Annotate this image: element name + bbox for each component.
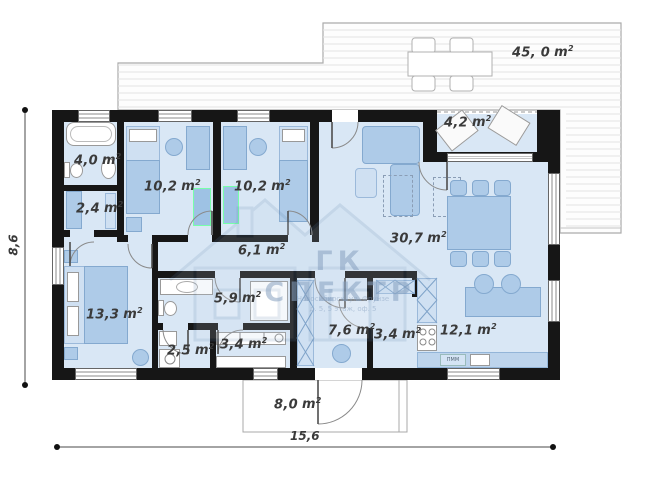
room-label-wardrobe: 2,4m2 xyxy=(76,200,124,216)
dimension-height: 8,6 xyxy=(7,234,21,255)
room-label-wc: 2,5m2 xyxy=(167,342,215,358)
room-label-entry-hall: 7,6m2 xyxy=(328,322,376,338)
room-label-living-room: 30,7m2 xyxy=(390,230,447,246)
watermark-address-line1: Новосибирск, ул. Фрунзе xyxy=(258,294,428,304)
room-label-wardrobe-2: 3,4m2 xyxy=(374,326,422,342)
room-label-kitchen: 12,1m2 xyxy=(440,322,497,338)
room-label-hallway: 6,1m2 xyxy=(238,242,286,258)
room-label-porch: 8,0m2 xyxy=(274,396,322,412)
room-label-bedroom-3: 13,3m2 xyxy=(86,306,143,322)
room-label-bathroom-2: 5,9m2 xyxy=(214,290,262,306)
watermark-address: Новосибирск, ул. Фрунзе д. 5, 5 этаж, оф… xyxy=(258,294,428,314)
floor-plan: ПММ xyxy=(0,0,661,502)
room-label-terrace: 45, 0m2 xyxy=(512,44,574,60)
room-label-bedroom-2: 10,2m2 xyxy=(234,178,291,194)
room-label-entry-terrace: 4,2m2 xyxy=(444,114,492,130)
room-label-bedroom-1: 10,2m2 xyxy=(144,178,201,194)
room-label-bathroom: 4,0m2 xyxy=(74,152,122,168)
dimension-length: 15,6 xyxy=(290,429,320,443)
room-label-storage: 3,4m2 xyxy=(220,336,268,352)
watermark-address-line2: д. 5, 5 этаж, оф. 5 xyxy=(258,304,428,314)
